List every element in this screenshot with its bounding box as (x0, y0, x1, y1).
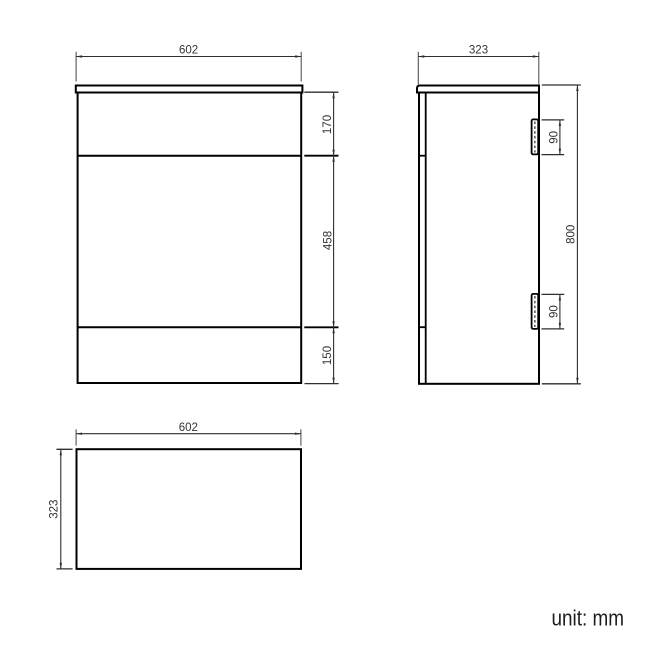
svg-text:150: 150 (322, 346, 334, 365)
svg-text:323: 323 (49, 500, 61, 519)
svg-text:90: 90 (548, 131, 560, 144)
svg-text:800: 800 (566, 225, 578, 244)
svg-text:90: 90 (548, 305, 560, 318)
svg-text:unit: mm: unit: mm (552, 606, 625, 631)
svg-text:170: 170 (322, 115, 334, 134)
svg-text:323: 323 (469, 45, 488, 57)
svg-text:602: 602 (179, 45, 198, 57)
svg-text:602: 602 (179, 422, 198, 434)
svg-text:458: 458 (323, 231, 335, 250)
